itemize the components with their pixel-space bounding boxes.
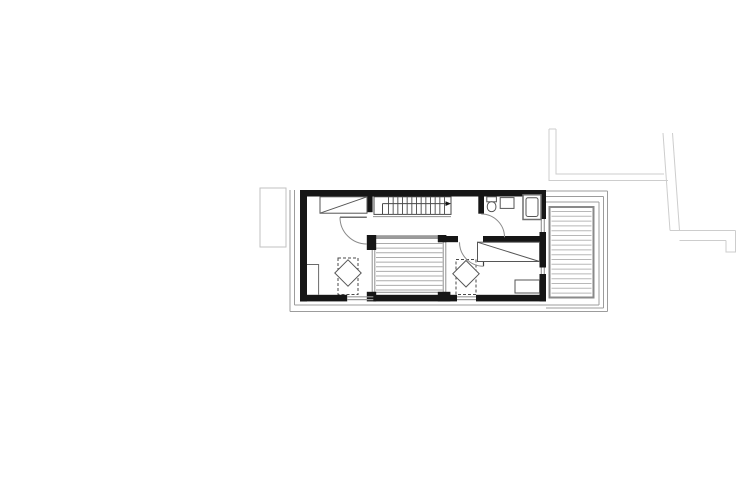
skylight-diamond-left [335, 260, 361, 286]
void-border [372, 239, 446, 293]
site-line-east-inner-vertical [673, 133, 680, 231]
void-post-topright [438, 235, 447, 242]
toilet-tank [487, 197, 497, 202]
wall-room1-divider [367, 197, 373, 213]
site-line-east-outer-vertical [663, 133, 670, 231]
bedroom2-nightstand [515, 280, 540, 293]
site-line-west-outer [549, 129, 668, 181]
wall-left [300, 197, 307, 302]
site-line-east-cap [726, 231, 736, 253]
wall-bottom-seg-left [300, 295, 347, 302]
wall-bed2-seg-right [483, 236, 546, 242]
void-post-bottomright [438, 292, 451, 302]
floor-plan-page [0, 0, 737, 492]
bathroom-sink [500, 198, 514, 209]
void-top-beam [372, 235, 446, 239]
wall-right-seg-bottom [540, 274, 547, 301]
wall-top [300, 190, 546, 197]
bedroom1-closet-lines [307, 265, 319, 295]
wall-bottom-seg-right [476, 295, 546, 302]
void-post-topleft [367, 235, 376, 250]
toilet-bowl [487, 202, 496, 212]
wall-bath-divider [478, 197, 484, 214]
site-line-west-inner [556, 129, 664, 174]
floor-plan-drawing [0, 0, 737, 492]
bathroom-door-swing-arc [481, 214, 504, 237]
left-annex-outline [260, 188, 286, 247]
door1-swing-arc [340, 217, 367, 244]
